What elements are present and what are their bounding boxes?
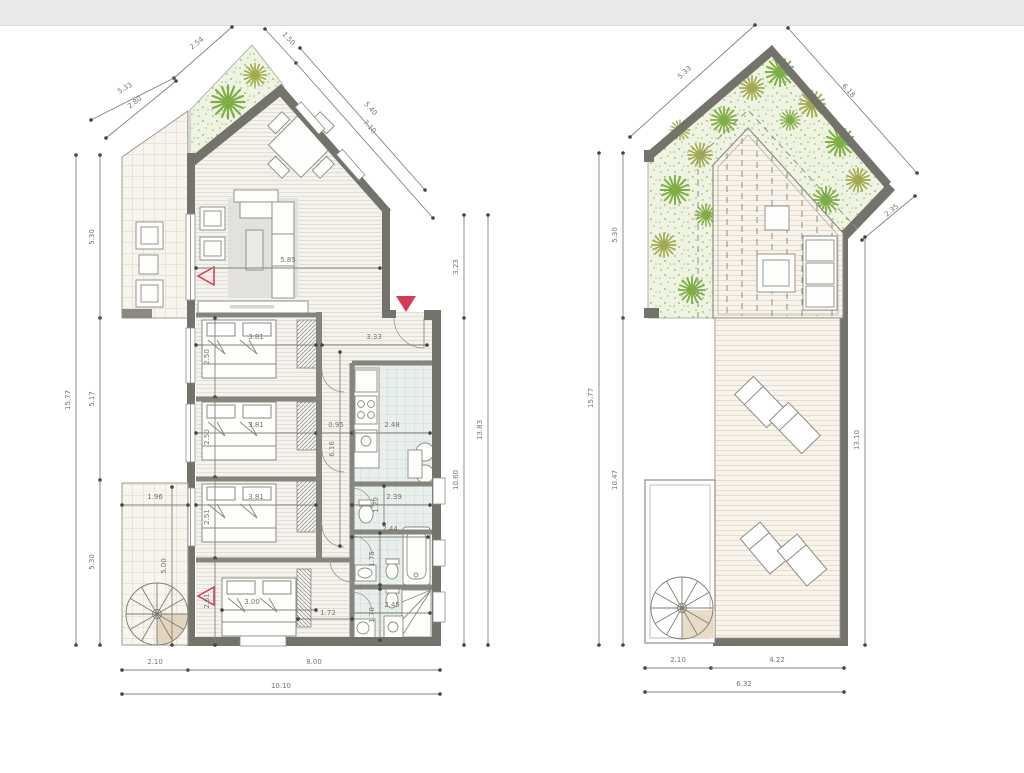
dim-label: 15.77 — [587, 388, 595, 408]
wardrobe — [297, 320, 318, 368]
dim-label: 2.51 — [203, 509, 211, 525]
floor-plan-canvas: 5.33 2.54 2.80 1.50 7.10 5.40 15.77 5.30… — [0, 0, 1024, 773]
roof-deck — [715, 318, 840, 638]
dim-label: 2.54 — [188, 35, 206, 51]
dim-label: 6.18 — [840, 82, 856, 99]
dim-label: 13.83 — [476, 420, 484, 440]
dim-label: 2.48 — [384, 421, 400, 429]
dim-label: 2.10 — [147, 658, 163, 666]
dim-label: 2.39 — [386, 493, 402, 501]
dim-label: 5.85 — [280, 256, 296, 264]
dim-label: 2.50 — [203, 429, 211, 445]
dim-label: 1.96 — [147, 493, 163, 501]
dim-label: 5.00 — [160, 558, 168, 574]
dim-label: 3.23 — [452, 259, 460, 275]
spiral-staircase — [126, 583, 188, 645]
dim-label: 2.50 — [203, 349, 211, 365]
left-plan-level: 5.33 2.54 2.80 1.50 7.10 5.40 15.77 5.30… — [64, 27, 488, 694]
dim-label: 1.72 — [320, 609, 336, 617]
dim-label: 3.81 — [248, 493, 264, 501]
dim-label: 6.16 — [328, 441, 336, 457]
dim-label: 8.00 — [306, 658, 322, 666]
bed-double — [202, 320, 276, 378]
dim-label: 5.33 — [116, 81, 134, 96]
plan-drawing: 5.33 2.54 2.80 1.50 7.10 5.40 15.77 5.30… — [0, 0, 1024, 773]
wardrobe — [297, 569, 311, 627]
spiral-staircase — [651, 577, 713, 639]
dim-label: 1.75 — [368, 551, 376, 567]
dim-label: 5.30 — [88, 554, 96, 570]
dim-label: 0.95 — [328, 421, 344, 429]
stair-room — [645, 480, 715, 643]
right-plan-roof: 5.33 6.18 2.35 15.77 5.30 10.47 13.10 2.… — [587, 25, 917, 692]
coffee-table — [246, 230, 263, 270]
dim-label: 2.35 — [883, 202, 900, 218]
dim-label: 4.22 — [769, 656, 785, 664]
dim-label: 6.32 — [736, 680, 752, 688]
dim-label: 5.30 — [88, 229, 96, 245]
dim-label: 1.50 — [280, 30, 296, 47]
dim-label: 5.30 — [611, 227, 619, 243]
dim-label: 2.45 — [384, 601, 400, 609]
wardrobe — [297, 402, 318, 450]
dim-label: 15.77 — [64, 390, 72, 410]
dim-label: 10.60 — [452, 470, 460, 490]
dim-label: 3.81 — [248, 421, 264, 429]
dim-label: 1.20 — [372, 497, 380, 513]
bed-double — [202, 484, 276, 542]
dim-label: 5.40 — [362, 100, 378, 117]
bed-double — [222, 578, 296, 636]
dim-label: 13.10 — [853, 430, 861, 450]
terrace-upper-left — [122, 111, 188, 318]
tree-icon — [243, 63, 266, 86]
bed-double — [202, 402, 276, 460]
dim-label: 5.33 — [676, 64, 693, 80]
planter — [122, 309, 152, 318]
dim-label: 2.80 — [126, 94, 143, 110]
terrace-lower-left — [122, 483, 188, 645]
dim-label: 2.61 — [203, 593, 211, 609]
dim-label: 1.70 — [368, 607, 376, 623]
dim-label: 3.00 — [244, 598, 260, 606]
dim-label: 5.17 — [88, 391, 96, 407]
dim-label: 10.47 — [611, 470, 619, 490]
corridor — [322, 318, 352, 558]
wardrobe — [297, 480, 318, 532]
entry-arrow-icon — [396, 296, 416, 312]
dim-label: 2.44 — [382, 525, 398, 533]
dim-label: 3.81 — [248, 333, 264, 341]
dim-label: 10.10 — [271, 682, 291, 690]
dim-label: 3.33 — [366, 333, 382, 341]
tree-icon — [212, 86, 245, 119]
dim-label: 2.10 — [670, 656, 686, 664]
